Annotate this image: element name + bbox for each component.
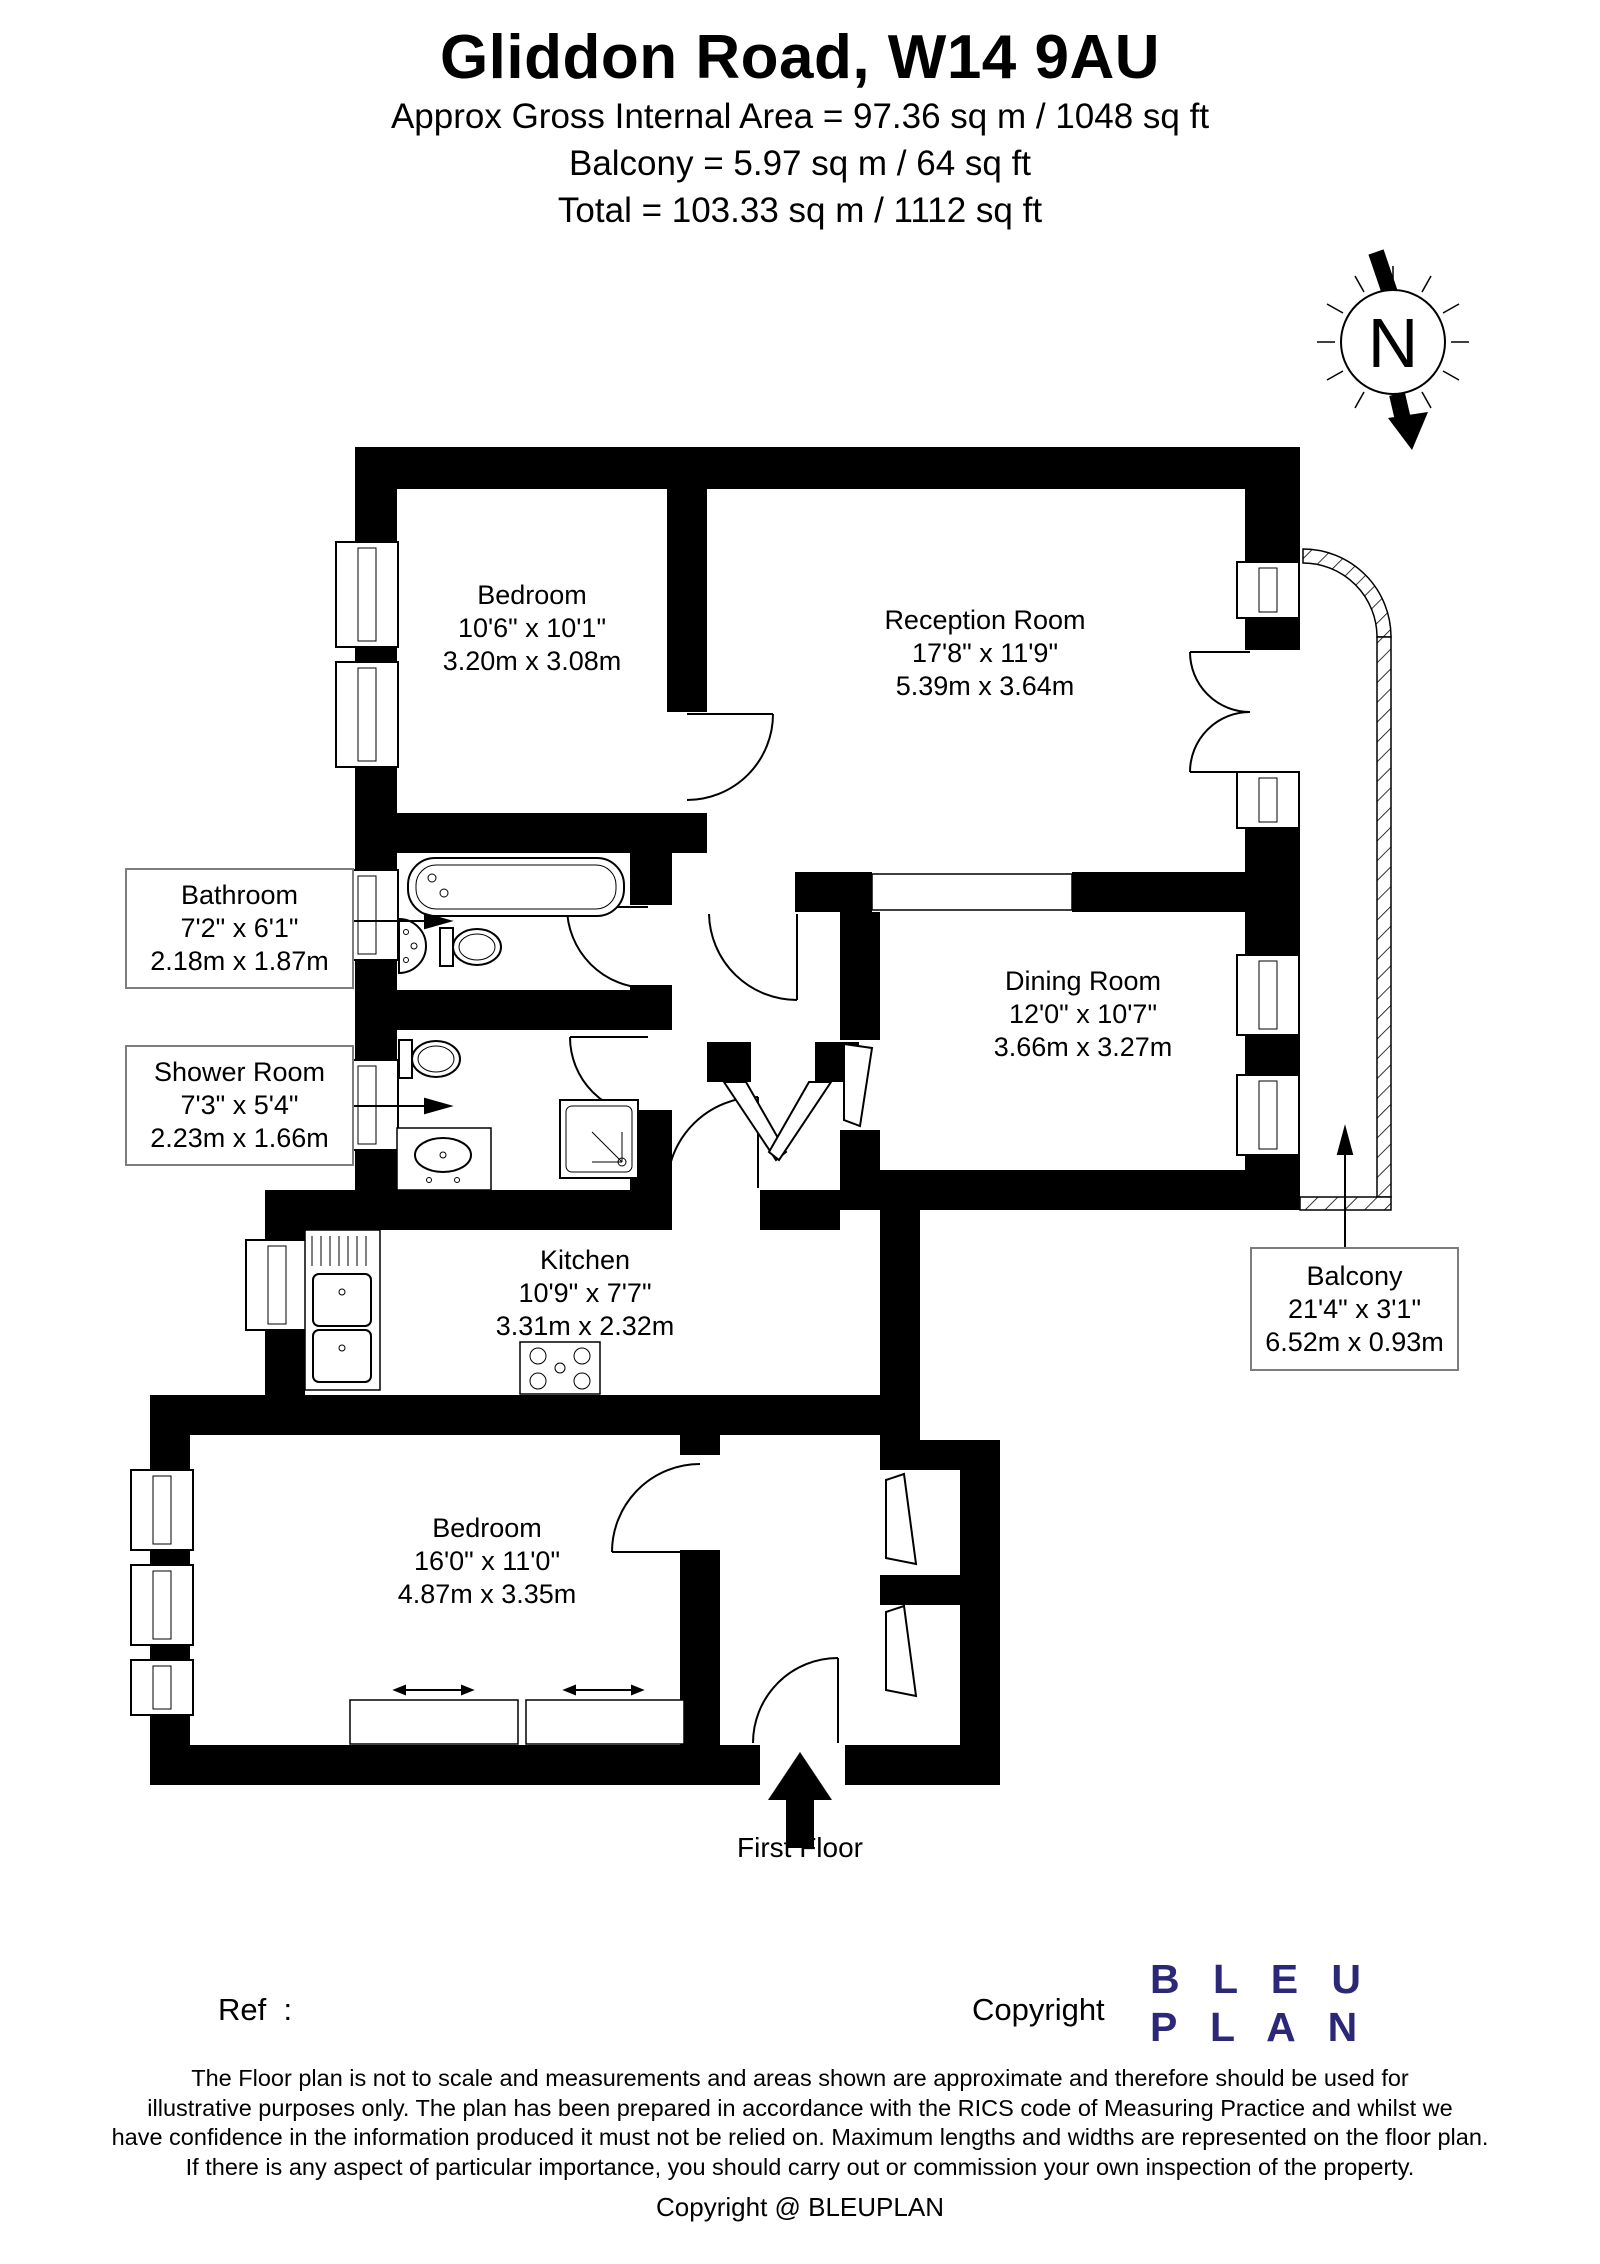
header: Gliddon Road, W14 9AU Approx Gross Inter…: [0, 22, 1600, 234]
cased-opening: [872, 874, 1072, 910]
callout-shower-room: Shower Room 7'3" x 5'4" 2.23m x 1.66m: [125, 1045, 354, 1166]
room-dim-metric: 2.23m x 1.66m: [127, 1122, 352, 1155]
toilet-icon: [440, 928, 501, 966]
room-name: Dining Room: [923, 965, 1243, 998]
wardrobe-icons: [350, 1700, 684, 1744]
room-dim-imperial: 7'3" x 5'4": [127, 1089, 352, 1122]
hob-icon: [520, 1342, 600, 1394]
logo-line: B L E U: [1150, 1955, 1372, 2003]
bleuplan-logo: B L E U P L A N: [1150, 1955, 1372, 2051]
room-dim-imperial: 10'6" x 10'1": [402, 612, 662, 645]
page-title: Gliddon Road, W14 9AU: [0, 22, 1600, 93]
disclaimer-text: The Floor plan is not to scale and measu…: [50, 2064, 1550, 2182]
room-name: Kitchen: [460, 1244, 710, 1277]
window-icon: [1237, 1075, 1299, 1155]
shower-sink-icon: [397, 1128, 491, 1190]
area-line: Balcony = 5.97 sq m / 64 sq ft: [0, 140, 1600, 187]
door-icon: [567, 907, 648, 988]
area-line: Total = 103.33 sq m / 1112 sq ft: [0, 187, 1600, 234]
room-name: Reception Room: [825, 604, 1145, 637]
room-dim-imperial: 12'0" x 10'7": [923, 998, 1243, 1031]
balcony-railing: [1300, 549, 1391, 1210]
logo-line: P L A N: [1150, 2003, 1372, 2051]
room-dim-metric: 6.52m x 0.93m: [1252, 1326, 1457, 1359]
room-label-bedroom-1: Bedroom 10'6" x 10'1" 3.20m x 3.08m: [402, 579, 662, 678]
toilet-icon: [399, 1040, 460, 1078]
room-label-kitchen: Kitchen 10'9" x 7'7" 3.31m x 2.32m: [460, 1244, 710, 1343]
room-dim-imperial: 17'8" x 11'9": [825, 637, 1145, 670]
room-dim-imperial: 7'2" x 6'1": [127, 912, 352, 945]
window-icon: [336, 662, 398, 767]
callout-balcony: Balcony 21'4" x 3'1" 6.52m x 0.93m: [1250, 1247, 1459, 1371]
door-icon: [612, 1464, 700, 1552]
room-dim-metric: 3.31m x 2.32m: [460, 1310, 710, 1343]
room-dim-imperial: 21'4" x 3'1": [1252, 1293, 1457, 1326]
room-name: Bedroom: [402, 579, 662, 612]
window-icon: [131, 1565, 193, 1645]
room-dim-imperial: 10'9" x 7'7": [460, 1277, 710, 1310]
entrance-door-icon: [753, 1658, 838, 1743]
wardrobe-arrows: [395, 1686, 642, 1694]
north-label: N: [1368, 304, 1419, 382]
north-compass-icon: N: [1317, 252, 1469, 450]
window-icon: [336, 542, 398, 647]
window-icon: [246, 1240, 308, 1330]
room-dim-metric: 4.87m x 3.35m: [357, 1578, 617, 1611]
room-label-reception: Reception Room 17'8" x 11'9" 5.39m x 3.6…: [825, 604, 1145, 703]
room-name: Balcony: [1252, 1260, 1457, 1293]
copyright-label: Copyright: [972, 1992, 1105, 2028]
window-icon: [1237, 955, 1299, 1035]
kitchen-sink-icon: [305, 1230, 380, 1390]
bathtub-icon: [408, 858, 624, 916]
shower-tray-icon: [560, 1100, 638, 1178]
room-dim-metric: 3.20m x 3.08m: [402, 645, 662, 678]
room-label-dining: Dining Room 12'0" x 10'7" 3.66m x 3.27m: [923, 965, 1243, 1064]
room-name: Bedroom: [357, 1512, 617, 1545]
copyright-line: Copyright @ BLEUPLAN: [0, 2192, 1600, 2223]
window-icon: [131, 1660, 193, 1715]
room-dim-metric: 5.39m x 3.64m: [825, 670, 1145, 703]
window-icon: [1237, 772, 1299, 828]
room-label-bedroom-2: Bedroom 16'0" x 11'0" 4.87m x 3.35m: [357, 1512, 617, 1611]
area-line: Approx Gross Internal Area = 97.36 sq m …: [0, 93, 1600, 140]
french-door-icon: [1190, 652, 1250, 772]
floor-label: First Floor: [650, 1832, 950, 1864]
door-icon: [687, 714, 773, 800]
room-dim-metric: 3.66m x 3.27m: [923, 1031, 1243, 1064]
window-icon: [131, 1470, 193, 1550]
room-dim-imperial: 16'0" x 11'0": [357, 1545, 617, 1578]
bathroom-sink-icon: [399, 919, 426, 973]
room-dim-metric: 2.18m x 1.87m: [127, 945, 352, 978]
floorplan-page: N Gliddon Road, W14 9AU Approx Gross Int…: [0, 0, 1600, 2264]
door-icon: [709, 914, 797, 1000]
window-icon: [1237, 562, 1299, 618]
balcony-leader-arrow: [1338, 1128, 1352, 1247]
room-name: Bathroom: [127, 879, 352, 912]
callout-bathroom: Bathroom 7'2" x 6'1" 2.18m x 1.87m: [125, 868, 354, 989]
ref-label: Ref :: [218, 1992, 292, 2028]
room-name: Shower Room: [127, 1056, 352, 1089]
